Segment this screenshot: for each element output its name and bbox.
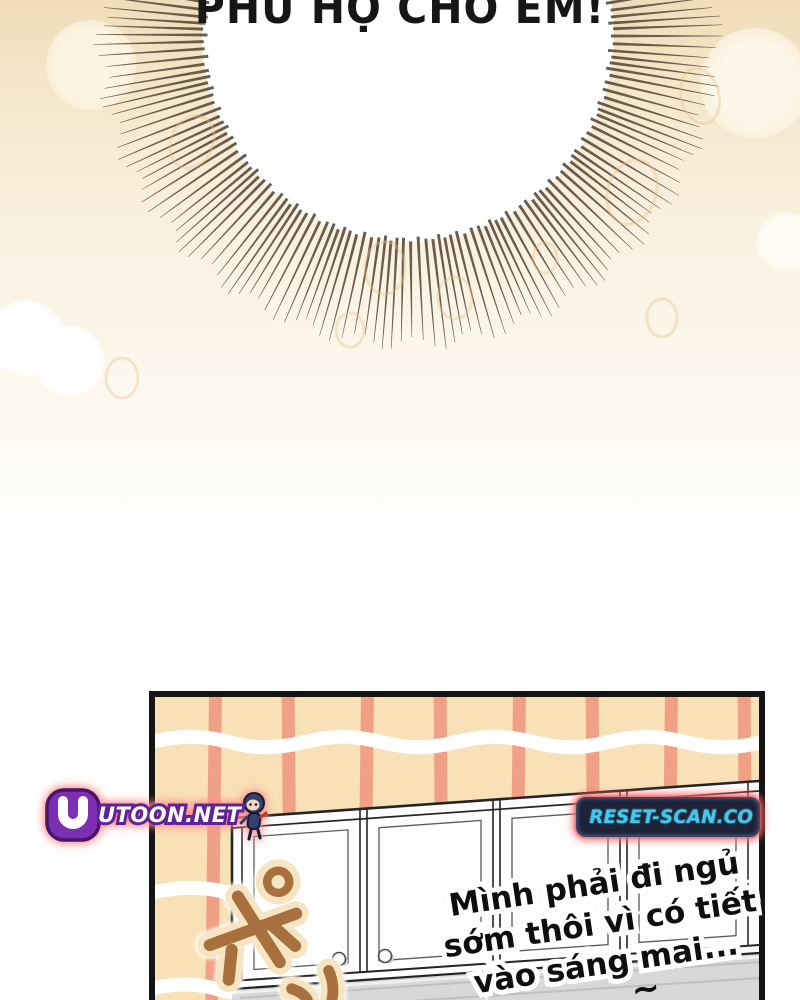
utoon-logo-text: UTOON.NET UTOON.NET xyxy=(98,803,241,827)
sfx-second-glyph-partial xyxy=(290,970,342,1000)
watermark-reset-scan: RESET-SCAN.CO xyxy=(576,797,760,837)
reset-scan-text: RESET-SCAN.CO xyxy=(589,806,753,828)
sunburst-speech-bubble xyxy=(0,0,800,470)
comic-page: PHÙ HỘ CHO EM! xyxy=(0,0,800,1000)
sfx-po-sound-effect xyxy=(150,845,420,1000)
utoon-mascot xyxy=(239,787,269,843)
utoon-logo-icon xyxy=(44,786,102,844)
speech-text-top: PHÙ HỘ CHO EM! xyxy=(0,0,800,33)
watermark-utoon: UTOON.NET UTOON.NET xyxy=(44,786,269,844)
